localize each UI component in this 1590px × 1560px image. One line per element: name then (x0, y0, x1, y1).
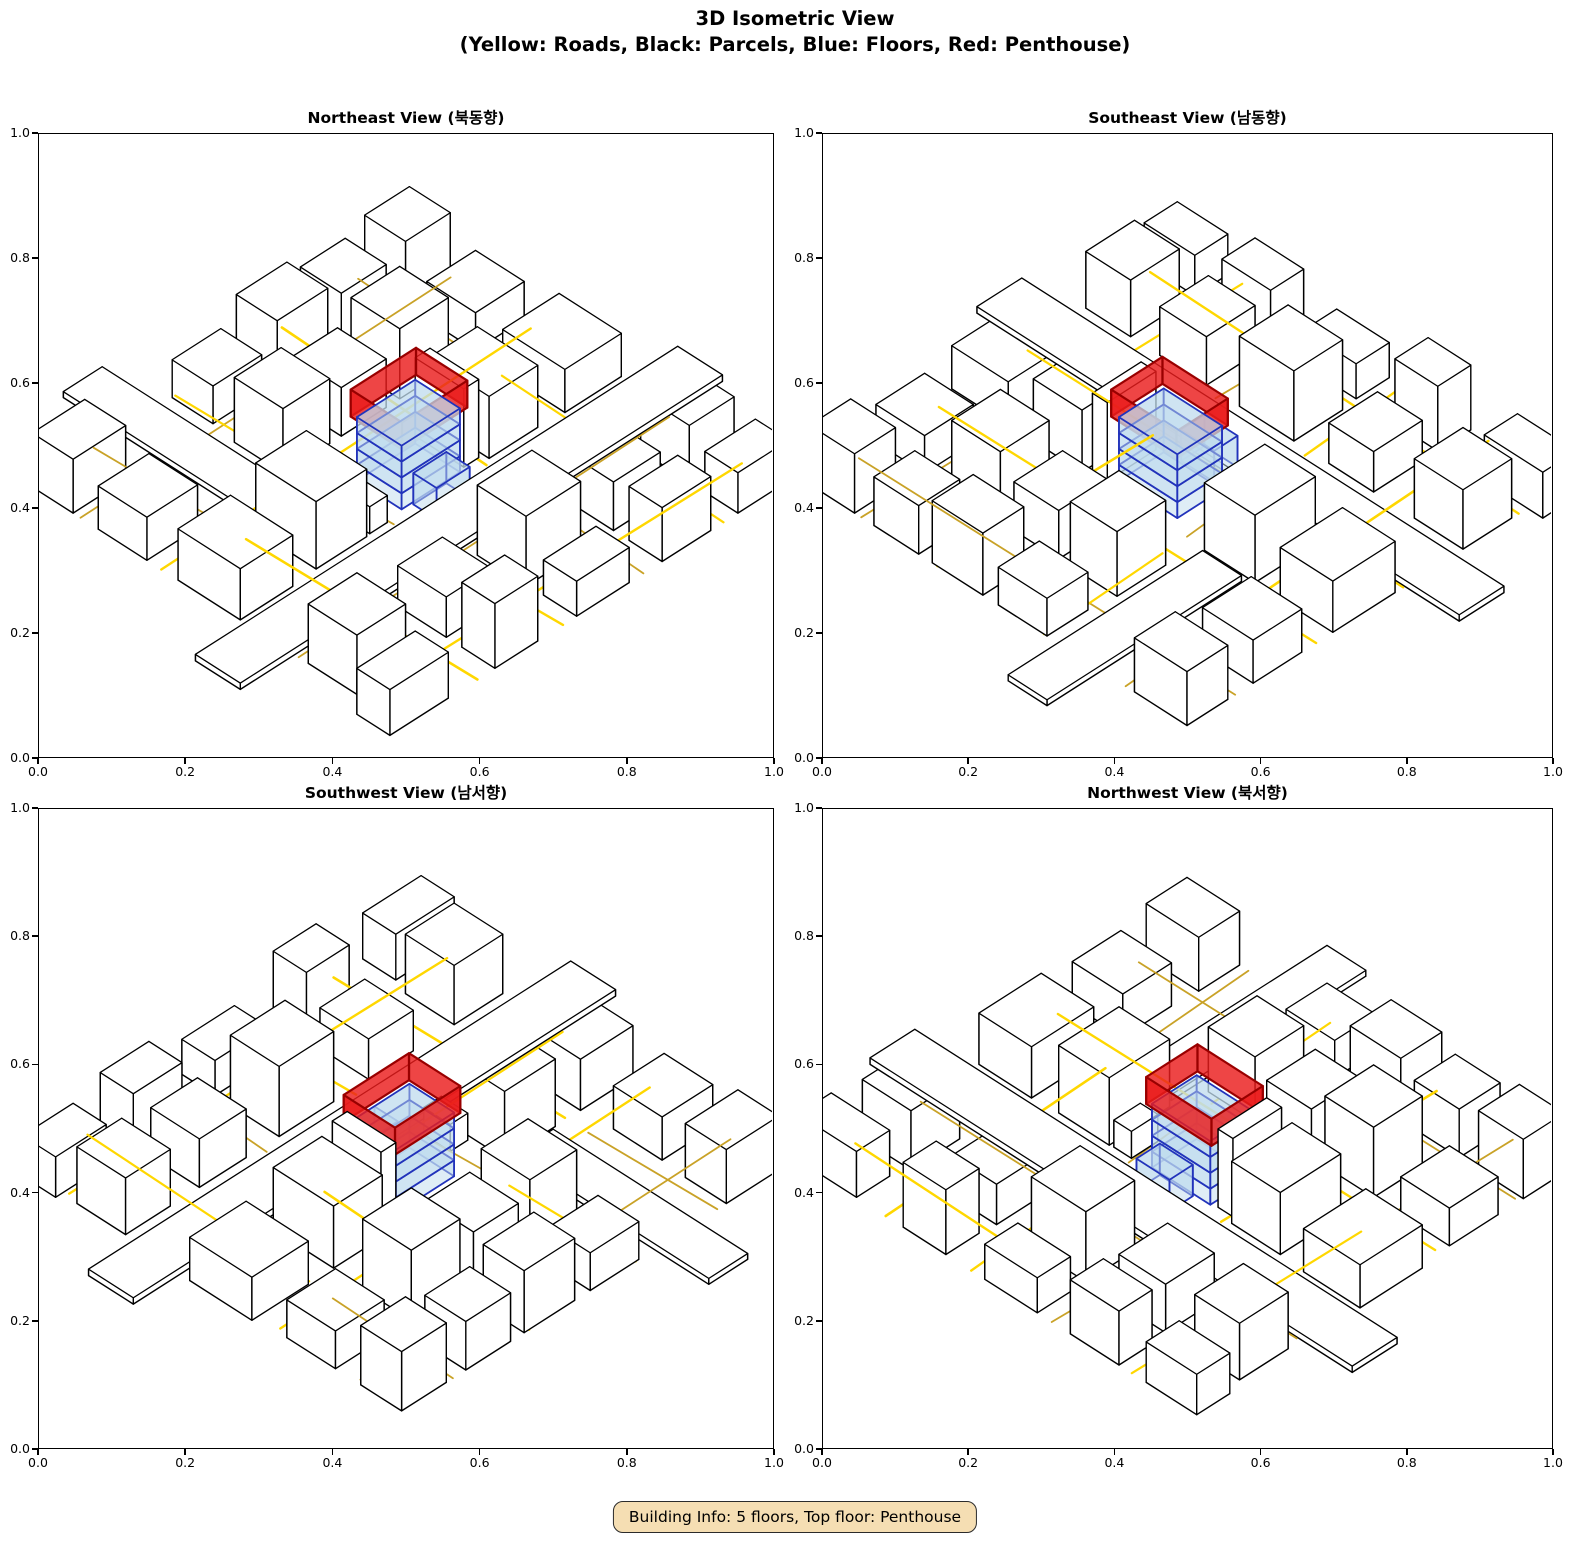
y-tick-label: 0.0 (782, 1441, 814, 1456)
figure-title: 3D Isometric View (0, 6, 1590, 32)
x-tick-label: 1.0 (758, 764, 790, 779)
y-tick-label: 0.4 (0, 1185, 30, 1200)
x-tick-mark (773, 758, 775, 764)
subplot-southwest (38, 808, 774, 1449)
y-tick-label: 0.8 (0, 928, 30, 943)
x-tick-label: 0.8 (611, 764, 643, 779)
y-tick-label: 0.2 (0, 1313, 30, 1328)
x-tick-label: 0.2 (952, 1455, 984, 1470)
x-tick-label: 0.8 (1391, 1455, 1423, 1470)
x-tick-mark (184, 1449, 186, 1455)
x-tick-mark (967, 758, 969, 764)
x-tick-label: 0.0 (22, 764, 54, 779)
y-tick-mark (816, 257, 822, 259)
y-tick-mark (32, 507, 38, 509)
subplot-title-northeast: Northeast View (북동향) (38, 106, 774, 128)
x-tick-label: 0.2 (952, 764, 984, 779)
x-tick-label: 0.6 (464, 764, 496, 779)
x-tick-mark (773, 1449, 775, 1455)
y-tick-label: 0.0 (0, 1441, 30, 1456)
x-tick-label: 0.0 (806, 764, 838, 779)
x-tick-mark (821, 1449, 823, 1455)
x-tick-mark (1406, 758, 1408, 764)
subplot-title-southeast: Southeast View (남동향) (822, 106, 1553, 128)
y-tick-mark (32, 257, 38, 259)
y-tick-label: 0.8 (0, 250, 30, 265)
y-tick-label: 1.0 (0, 800, 30, 815)
x-tick-label: 1.0 (1537, 764, 1569, 779)
x-tick-mark (821, 758, 823, 764)
y-tick-mark (32, 935, 38, 937)
y-tick-mark (816, 1192, 822, 1194)
x-tick-label: 0.4 (316, 1455, 348, 1470)
subplot-title-southwest: Southwest View (남서향) (38, 781, 774, 803)
x-tick-label: 1.0 (758, 1455, 790, 1470)
y-tick-mark (32, 632, 38, 634)
y-tick-mark (32, 1192, 38, 1194)
subplot-title-northwest: Northwest View (북서향) (822, 781, 1553, 803)
x-tick-label: 0.2 (169, 764, 201, 779)
y-tick-label: 0.6 (0, 375, 30, 390)
x-tick-label: 0.4 (1098, 764, 1130, 779)
x-tick-mark (332, 1449, 334, 1455)
y-tick-mark (816, 632, 822, 634)
y-tick-label: 0.2 (0, 625, 30, 640)
x-tick-mark (1114, 758, 1116, 764)
x-tick-mark (479, 1449, 481, 1455)
subplot-northeast (38, 133, 774, 758)
x-tick-label: 0.8 (1391, 764, 1423, 779)
x-tick-mark (1406, 1449, 1408, 1455)
x-tick-label: 0.6 (464, 1455, 496, 1470)
y-tick-label: 0.6 (782, 1056, 814, 1071)
x-tick-label: 0.6 (1245, 1455, 1277, 1470)
y-tick-mark (32, 132, 38, 134)
y-tick-mark (816, 507, 822, 509)
subplot-northwest (822, 808, 1553, 1449)
y-tick-label: 1.0 (782, 800, 814, 815)
y-tick-mark (32, 807, 38, 809)
y-tick-label: 0.4 (782, 1185, 814, 1200)
scene-southeast (823, 134, 1551, 756)
building-info-badge: Building Info: 5 floors, Top floor: Pent… (613, 1501, 977, 1533)
x-tick-label: 0.4 (316, 764, 348, 779)
subplot-southeast (822, 133, 1553, 758)
x-tick-mark (1552, 758, 1554, 764)
y-tick-mark (32, 1320, 38, 1322)
x-tick-label: 0.8 (611, 1455, 643, 1470)
x-tick-label: 0.2 (169, 1455, 201, 1470)
y-tick-label: 0.4 (0, 500, 30, 515)
x-tick-mark (626, 1449, 628, 1455)
y-tick-mark (816, 935, 822, 937)
x-tick-mark (1260, 1449, 1262, 1455)
x-tick-mark (332, 758, 334, 764)
figure-subtitle: (Yellow: Roads, Black: Parcels, Blue: Fl… (0, 32, 1590, 58)
y-tick-mark (816, 807, 822, 809)
y-tick-label: 0.6 (0, 1056, 30, 1071)
y-tick-mark (816, 1064, 822, 1066)
x-tick-mark (37, 1449, 39, 1455)
scene-southwest (39, 809, 772, 1447)
y-tick-label: 0.4 (782, 500, 814, 515)
scene-northwest (823, 809, 1551, 1447)
y-tick-mark (816, 382, 822, 384)
y-tick-label: 0.6 (782, 375, 814, 390)
x-tick-mark (626, 758, 628, 764)
x-tick-mark (1552, 1449, 1554, 1455)
x-tick-mark (184, 758, 186, 764)
x-tick-label: 0.6 (1245, 764, 1277, 779)
x-tick-mark (1260, 758, 1262, 764)
y-tick-label: 1.0 (0, 125, 30, 140)
x-tick-mark (1114, 1449, 1116, 1455)
x-tick-label: 0.4 (1098, 1455, 1130, 1470)
x-tick-label: 0.0 (22, 1455, 54, 1470)
x-tick-mark (37, 758, 39, 764)
scene-northeast (39, 134, 772, 756)
x-tick-mark (479, 758, 481, 764)
y-tick-label: 0.0 (782, 750, 814, 765)
y-tick-label: 0.0 (0, 750, 30, 765)
y-tick-label: 0.2 (782, 625, 814, 640)
y-tick-mark (816, 132, 822, 134)
y-tick-label: 0.8 (782, 928, 814, 943)
y-tick-mark (816, 1320, 822, 1322)
x-tick-label: 1.0 (1537, 1455, 1569, 1470)
figure-canvas: 3D Isometric View (Yellow: Roads, Black:… (0, 0, 1590, 1560)
y-tick-label: 0.8 (782, 250, 814, 265)
x-tick-label: 0.0 (806, 1455, 838, 1470)
x-tick-mark (967, 1449, 969, 1455)
y-tick-mark (32, 382, 38, 384)
y-tick-label: 0.2 (782, 1313, 814, 1328)
y-tick-label: 1.0 (782, 125, 814, 140)
y-tick-mark (32, 1064, 38, 1066)
